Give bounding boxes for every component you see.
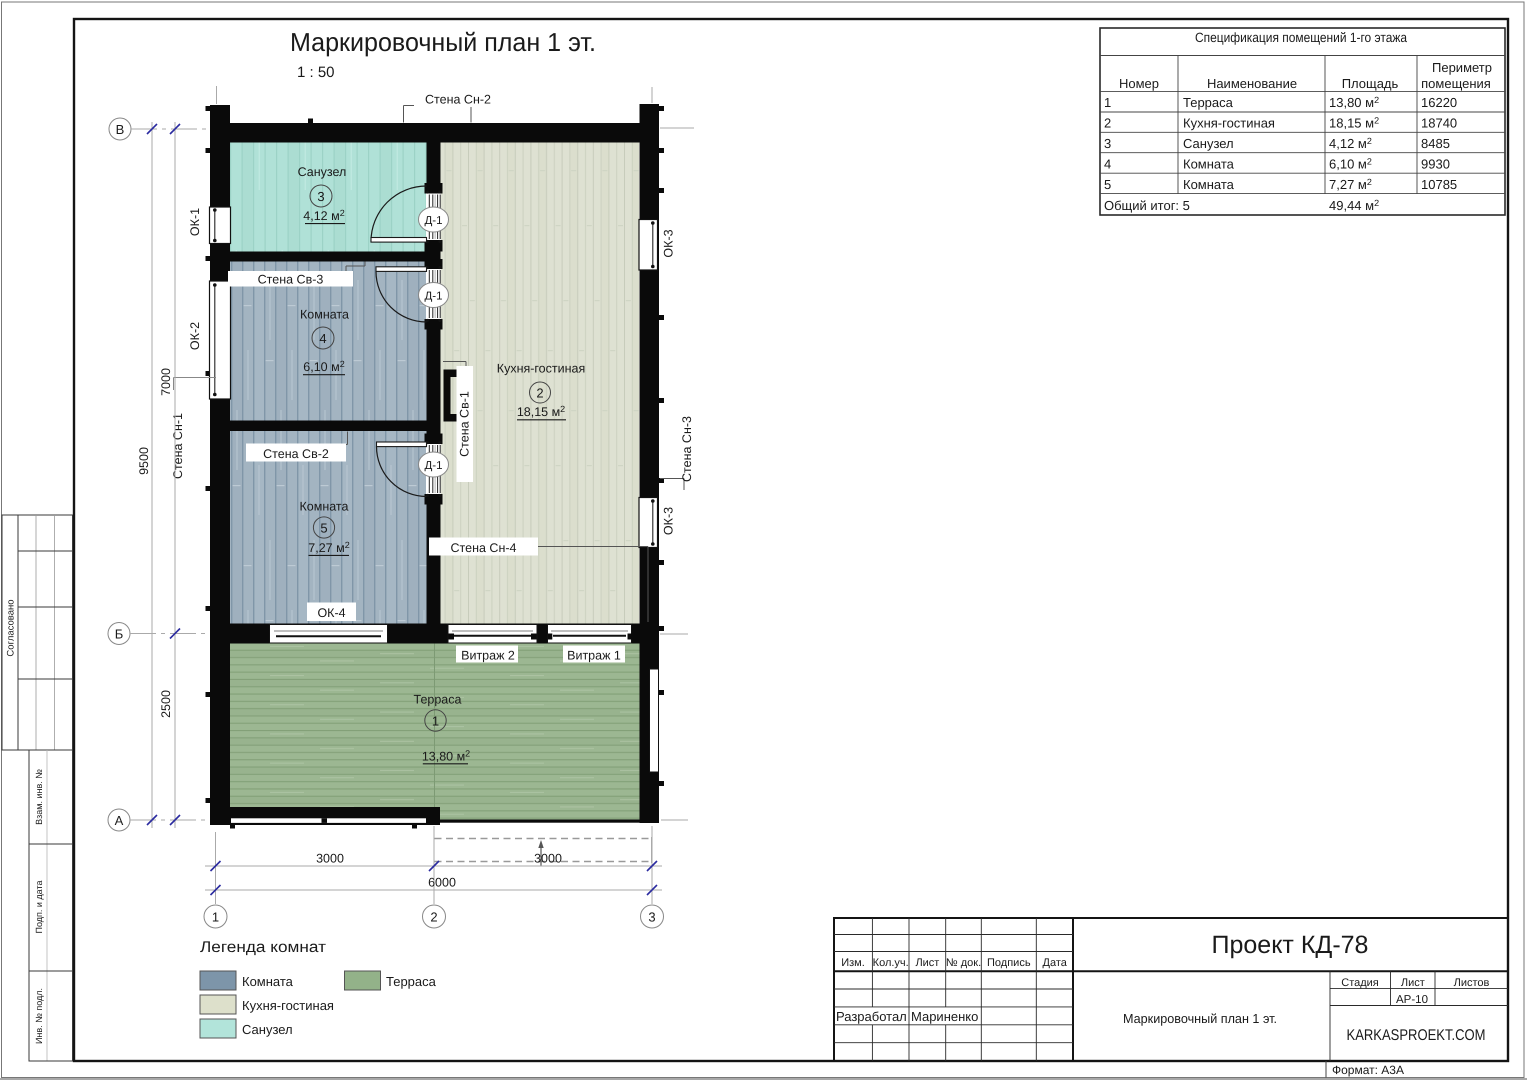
- svg-text:Д-1: Д-1: [424, 291, 442, 303]
- svg-text:18,15 м2: 18,15 м2: [517, 404, 565, 419]
- svg-text:Мариненко: Мариненко: [911, 1009, 978, 1024]
- svg-text:Стадия: Стадия: [1341, 977, 1379, 989]
- svg-text:Терраса: Терраса: [386, 974, 437, 989]
- svg-text:Стена Сн-4: Стена Сн-4: [451, 541, 517, 555]
- svg-text:18740: 18740: [1421, 116, 1457, 131]
- svg-text:9930: 9930: [1421, 157, 1450, 172]
- svg-text:9500: 9500: [137, 447, 151, 475]
- svg-text:Терраса: Терраса: [1183, 95, 1234, 110]
- svg-text:Листов: Листов: [1454, 977, 1490, 989]
- svg-text:4: 4: [319, 331, 326, 346]
- svg-text:49,44 м2: 49,44 м2: [1329, 198, 1379, 213]
- svg-text:Кухня-гостиная: Кухня-гостиная: [1183, 116, 1275, 131]
- svg-text:8485: 8485: [1421, 136, 1450, 151]
- svg-text:Спецификация помещений 1-го эт: Спецификация помещений 1-го этажа: [1195, 30, 1407, 45]
- svg-text:Изм.: Изм.: [841, 957, 865, 969]
- svg-text:Комната: Комната: [300, 308, 349, 322]
- svg-text:Санузел: Санузел: [1183, 136, 1234, 151]
- svg-text:Периметр: Периметр: [1432, 60, 1492, 75]
- svg-text:KARKASPROEKT.COM: KARKASPROEKT.COM: [1347, 1027, 1486, 1044]
- svg-text:1: 1: [432, 714, 439, 729]
- svg-text:18,15 м2: 18,15 м2: [1329, 116, 1379, 131]
- svg-text:13,80 м2: 13,80 м2: [422, 749, 470, 764]
- svg-text:Маркировочный план 1 эт.: Маркировочный план 1 эт.: [290, 27, 596, 57]
- svg-text:Дата: Дата: [1043, 957, 1068, 969]
- svg-text:Проект КД-78: Проект КД-78: [1212, 931, 1369, 959]
- svg-text:ОК-2: ОК-2: [188, 322, 202, 350]
- svg-text:Комната: Комната: [242, 974, 294, 989]
- svg-text:3: 3: [648, 910, 655, 925]
- svg-text:16220: 16220: [1421, 95, 1457, 110]
- svg-text:Инв. № подл.: Инв. № подл.: [34, 988, 44, 1044]
- svg-text:1 : 50: 1 : 50: [297, 64, 335, 81]
- svg-text:Стена Сн-3: Стена Сн-3: [680, 416, 694, 482]
- svg-text:Номер: Номер: [1119, 76, 1159, 91]
- svg-text:7,27 м2: 7,27 м2: [308, 540, 349, 555]
- svg-text:13,80 м2: 13,80 м2: [1329, 95, 1379, 110]
- svg-text:5: 5: [320, 521, 327, 536]
- svg-text:6,10 м2: 6,10 м2: [1329, 157, 1372, 172]
- svg-text:ОК-3: ОК-3: [662, 507, 676, 535]
- svg-text:Витраж 2: Витраж 2: [461, 649, 515, 663]
- svg-text:№ док.: № док.: [946, 957, 981, 969]
- svg-text:10785: 10785: [1421, 177, 1457, 192]
- svg-text:Стена Св-1: Стена Св-1: [458, 391, 472, 457]
- svg-text:Площадь: Площадь: [1342, 76, 1399, 91]
- svg-text:Стена Св-2: Стена Св-2: [263, 447, 329, 461]
- svg-text:Подп. и дата: Подп. и дата: [34, 880, 44, 933]
- svg-text:2: 2: [1104, 116, 1111, 131]
- svg-text:Д-1: Д-1: [424, 215, 442, 227]
- svg-text:ОК-1: ОК-1: [188, 208, 202, 236]
- svg-text:Д-1: Д-1: [424, 460, 442, 472]
- svg-text:Лист: Лист: [915, 957, 939, 969]
- svg-text:3000: 3000: [316, 852, 344, 866]
- svg-text:ОК-3: ОК-3: [662, 229, 676, 257]
- svg-text:4,12 м2: 4,12 м2: [1329, 136, 1372, 151]
- svg-text:АР-10: АР-10: [1396, 994, 1428, 1006]
- svg-text:Комната: Комната: [1183, 157, 1235, 172]
- svg-text:1: 1: [1104, 95, 1111, 110]
- svg-text:6000: 6000: [428, 876, 456, 890]
- svg-text:Кол.уч.: Кол.уч.: [873, 957, 909, 969]
- svg-text:Санузел: Санузел: [298, 165, 347, 179]
- svg-text:2: 2: [430, 910, 437, 925]
- svg-text:6,10 м2: 6,10 м2: [303, 359, 344, 374]
- svg-text:Витраж 1: Витраж 1: [567, 649, 621, 663]
- svg-text:В: В: [116, 122, 125, 137]
- svg-text:ОК-4: ОК-4: [317, 606, 345, 620]
- svg-text:1: 1: [212, 910, 219, 925]
- svg-text:Маркировочный план 1 эт.: Маркировочный план 1 эт.: [1123, 1011, 1277, 1026]
- svg-text:А: А: [115, 813, 124, 828]
- svg-text:Стена Св-3: Стена Св-3: [258, 273, 324, 287]
- svg-text:4: 4: [1104, 157, 1111, 172]
- svg-text:Комната: Комната: [1183, 177, 1235, 192]
- svg-text:3000: 3000: [534, 852, 562, 866]
- svg-text:Легенда комнат: Легенда комнат: [200, 939, 326, 956]
- svg-text:Стена Сн-1: Стена Сн-1: [171, 413, 185, 479]
- svg-text:3: 3: [317, 189, 324, 204]
- svg-text:Наименование: Наименование: [1207, 76, 1297, 91]
- svg-text:Санузел: Санузел: [242, 1022, 293, 1037]
- svg-text:3: 3: [1104, 136, 1111, 151]
- svg-text:Формат: А3А: Формат: А3А: [1332, 1063, 1404, 1077]
- svg-text:Взам. инв. №: Взам. инв. №: [34, 769, 44, 825]
- svg-text:Согласовано: Согласовано: [6, 599, 17, 656]
- svg-text:5: 5: [1104, 177, 1111, 192]
- svg-text:Лист: Лист: [1401, 977, 1425, 989]
- svg-text:Кухня-гостиная: Кухня-гостиная: [497, 362, 585, 376]
- svg-text:Стена Сн-2: Стена Сн-2: [425, 93, 491, 107]
- svg-text:2500: 2500: [159, 690, 173, 718]
- svg-text:Б: Б: [115, 627, 124, 642]
- svg-text:Общий итог: 5: Общий итог: 5: [1104, 198, 1190, 213]
- svg-text:Разработал: Разработал: [836, 1009, 907, 1024]
- svg-text:4,12 м2: 4,12 м2: [303, 208, 344, 223]
- svg-text:Комната: Комната: [300, 500, 349, 514]
- svg-text:Подпись: Подпись: [987, 957, 1031, 969]
- svg-text:Кухня-гостиная: Кухня-гостиная: [242, 998, 334, 1013]
- svg-text:7,27 м2: 7,27 м2: [1329, 177, 1372, 192]
- svg-text:Терраса: Терраса: [414, 693, 462, 707]
- svg-text:7000: 7000: [159, 368, 173, 396]
- svg-text:помещения: помещения: [1421, 76, 1491, 91]
- svg-text:2: 2: [536, 386, 543, 401]
